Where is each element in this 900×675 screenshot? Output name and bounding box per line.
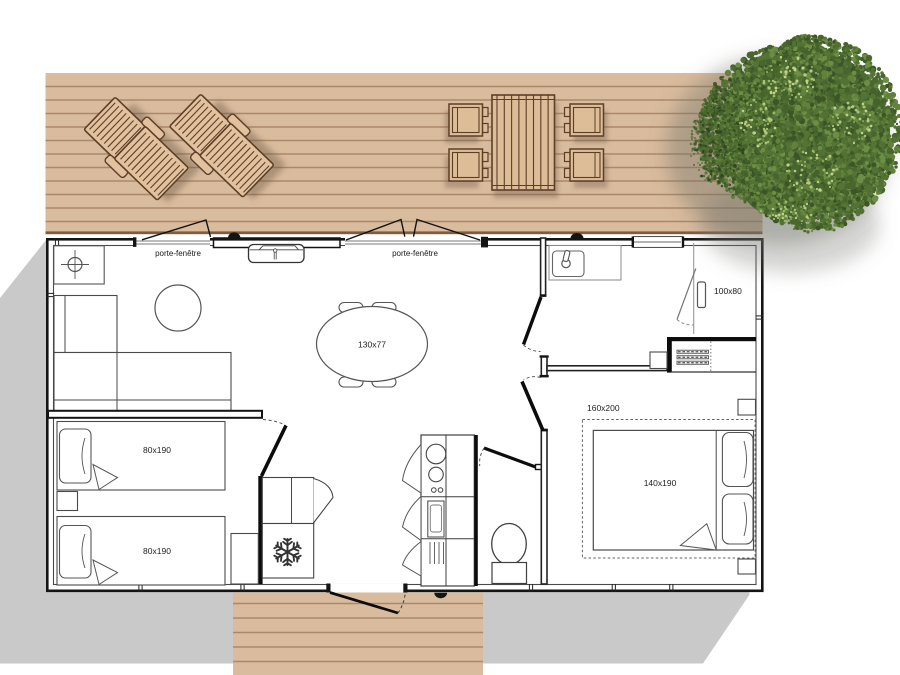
svg-text:140x190: 140x190 — [644, 478, 677, 488]
svg-text:porte-fenêtre: porte-fenêtre — [392, 249, 438, 258]
svg-text:80x190: 80x190 — [143, 546, 171, 556]
svg-text:80x190: 80x190 — [143, 445, 171, 455]
svg-text:160x200: 160x200 — [587, 403, 620, 413]
svg-text:130x77: 130x77 — [358, 340, 386, 350]
svg-text:100x80: 100x80 — [714, 286, 742, 296]
svg-text:porte-fenêtre: porte-fenêtre — [155, 249, 201, 258]
